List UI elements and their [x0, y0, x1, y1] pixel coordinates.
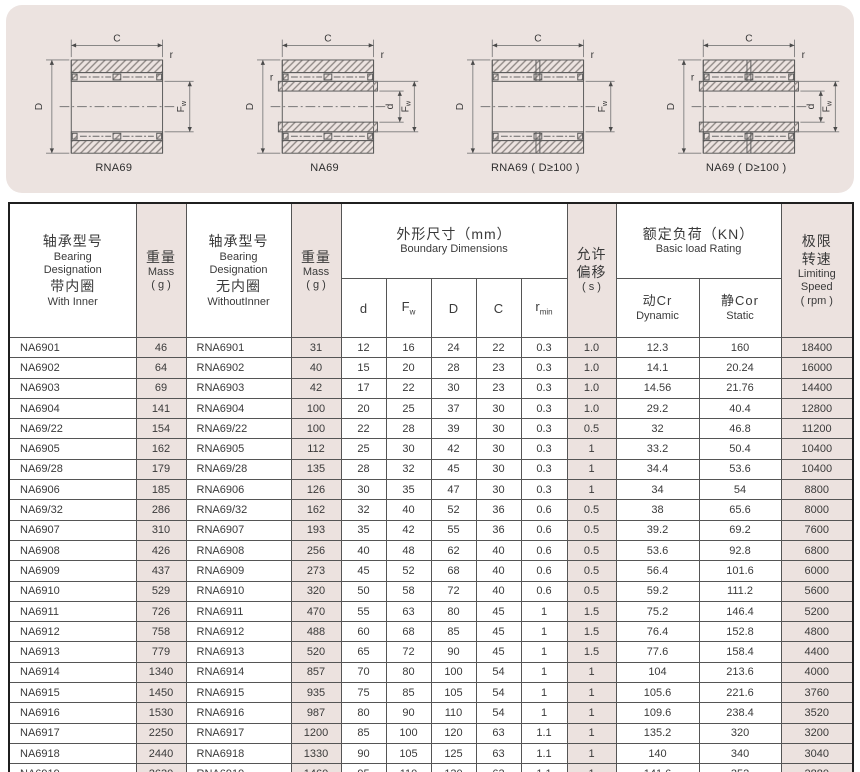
dim-d-cell: 32 — [341, 500, 386, 520]
mass-without-inner-cell: 42 — [291, 378, 341, 398]
dim-label-D: D — [666, 102, 677, 109]
designation-with-inner-cell: NA6912 — [9, 622, 136, 642]
offset-s-cell: 1 — [567, 439, 616, 459]
dim-fw-cell: 32 — [386, 459, 431, 479]
dim-fw-cell: 72 — [386, 642, 431, 662]
offset-s-cell: 0.5 — [567, 500, 616, 520]
offset-s-cell: 0.5 — [567, 581, 616, 601]
table-row: NA69151450RNA691593575851055411105.6221.… — [9, 683, 853, 703]
load-static-cor-cell: 238.4 — [699, 703, 781, 723]
dim-D-cell: 68 — [431, 561, 476, 581]
dim-d-cell: 20 — [341, 398, 386, 418]
dim-d-cell: 85 — [341, 723, 386, 743]
dim-fw-cell: 100 — [386, 723, 431, 743]
limiting-speed-cell: 11200 — [781, 419, 853, 439]
dim-D-cell: 110 — [431, 703, 476, 723]
table-row: NA6905162RNA6905112253042300.3133.250.41… — [9, 439, 853, 459]
dim-d-cell: 75 — [341, 683, 386, 703]
header-permissible-offset: 允许 偏移 ( s ) — [567, 203, 616, 338]
dim-C-cell: 22 — [476, 338, 521, 358]
load-dynamic-cr-cell: 14.1 — [616, 358, 699, 378]
mass-with-inner-cell: 2440 — [136, 743, 186, 763]
header-text: 静Cor — [700, 293, 781, 309]
load-static-cor-cell: 213.6 — [699, 662, 781, 682]
limiting-speed-cell: 3520 — [781, 703, 853, 723]
offset-s-cell: 1 — [567, 662, 616, 682]
header-text: min — [540, 308, 553, 317]
offset-s-cell: 1.5 — [567, 622, 616, 642]
dim-rmin-cell: 0.6 — [521, 520, 567, 540]
limiting-speed-cell: 5200 — [781, 601, 853, 621]
table-row: NA69/28179RNA69/28135283245300.3134.453.… — [9, 459, 853, 479]
header-dynamic-cr: 动Cr Dynamic — [616, 279, 699, 338]
header-text: d — [360, 301, 367, 316]
dim-label-D: D — [34, 102, 45, 109]
dim-fw-cell: 80 — [386, 662, 431, 682]
dim-d-cell: 25 — [341, 439, 386, 459]
designation-with-inner-cell: NA6903 — [9, 378, 136, 398]
dim-D-cell: 37 — [431, 398, 476, 418]
offset-s-cell: 0.5 — [567, 419, 616, 439]
limiting-speed-cell: 4400 — [781, 642, 853, 662]
load-dynamic-cr-cell: 12.3 — [616, 338, 699, 358]
mass-with-inner-cell: 141 — [136, 398, 186, 418]
designation-with-inner-cell: NA69/28 — [9, 459, 136, 479]
designation-without-inner-cell: RNA6906 — [186, 480, 291, 500]
dim-D-cell: 130 — [431, 764, 476, 772]
dim-C-cell: 45 — [476, 601, 521, 621]
table-row: NA69/32286RNA69/32162324052360.60.53865.… — [9, 500, 853, 520]
designation-without-inner-cell: RNA6908 — [186, 540, 291, 560]
dim-D-cell: 62 — [431, 540, 476, 560]
dim-fw-cell: 40 — [386, 500, 431, 520]
limiting-speed-cell: 2880 — [781, 764, 853, 772]
limiting-speed-cell: 3040 — [781, 743, 853, 763]
dim-D-cell: 125 — [431, 743, 476, 763]
mass-with-inner-cell: 2630 — [136, 764, 186, 772]
load-static-cor-cell: 40.4 — [699, 398, 781, 418]
dim-d-cell: 12 — [341, 338, 386, 358]
dim-rmin-cell: 1 — [521, 622, 567, 642]
bearing-cross-section-na69-d100: CrDFwdr — [645, 25, 847, 161]
dim-d-cell: 45 — [341, 561, 386, 581]
dim-fw-cell: 30 — [386, 439, 431, 459]
designation-without-inner-cell: RNA6902 — [186, 358, 291, 378]
mass-with-inner-cell: 1530 — [136, 703, 186, 723]
table-row: NA6913779RNA69135206572904511.577.6158.4… — [9, 642, 853, 662]
header-text: 带内圈 — [10, 277, 136, 296]
table-row: NA69161530RNA691698780901105411109.6238.… — [9, 703, 853, 723]
dim-rmin-cell: 1 — [521, 601, 567, 621]
table-row: NA6906185RNA6906126303547300.3134548800 — [9, 480, 853, 500]
load-static-cor-cell: 54 — [699, 480, 781, 500]
dim-rmin-cell: 0.3 — [521, 398, 567, 418]
mass-without-inner-cell: 162 — [291, 500, 341, 520]
designation-without-inner-cell: RNA69/32 — [186, 500, 291, 520]
dim-rmin-cell: 1.1 — [521, 723, 567, 743]
mass-without-inner-cell: 520 — [291, 642, 341, 662]
header-text: Mass ( g ) — [292, 266, 341, 292]
dim-d-cell: 15 — [341, 358, 386, 378]
load-static-cor-cell: 158.4 — [699, 642, 781, 662]
limiting-speed-cell: 14400 — [781, 378, 853, 398]
header-text: 重量 — [137, 249, 186, 267]
mass-with-inner-cell: 185 — [136, 480, 186, 500]
dim-d-cell: 60 — [341, 622, 386, 642]
dim-d-cell: 80 — [341, 703, 386, 723]
load-dynamic-cr-cell: 56.4 — [616, 561, 699, 581]
load-dynamic-cr-cell: 105.6 — [616, 683, 699, 703]
offset-s-cell: 1.5 — [567, 642, 616, 662]
load-static-cor-cell: 160 — [699, 338, 781, 358]
dim-C-cell: 40 — [476, 561, 521, 581]
load-static-cor-cell: 50.4 — [699, 439, 781, 459]
dim-C-cell: 54 — [476, 683, 521, 703]
dim-label-d: d — [806, 103, 817, 109]
dim-C-cell: 30 — [476, 398, 521, 418]
mass-with-inner-cell: 310 — [136, 520, 186, 540]
limiting-speed-cell: 16000 — [781, 358, 853, 378]
load-dynamic-cr-cell: 34.4 — [616, 459, 699, 479]
header-text: 极限 转速 — [782, 233, 853, 268]
designation-with-inner-cell: NA6907 — [9, 520, 136, 540]
header-dim-C: C — [476, 279, 521, 338]
header-text: D — [449, 301, 458, 316]
offset-s-cell: 1 — [567, 703, 616, 723]
limiting-speed-cell: 7600 — [781, 520, 853, 540]
dim-rmin-cell: 1 — [521, 662, 567, 682]
dim-d-cell: 65 — [341, 642, 386, 662]
mass-without-inner-cell: 31 — [291, 338, 341, 358]
dim-fw-cell: 68 — [386, 622, 431, 642]
mass-with-inner-cell: 1450 — [136, 683, 186, 703]
mass-with-inner-cell: 779 — [136, 642, 186, 662]
dim-d-cell: 70 — [341, 662, 386, 682]
mass-with-inner-cell: 64 — [136, 358, 186, 378]
designation-without-inner-cell: RNA6912 — [186, 622, 291, 642]
designation-without-inner-cell: RNA6919 — [186, 764, 291, 772]
dim-D-cell: 80 — [431, 601, 476, 621]
table-row: NA69172250RNA6917120085100120631.11135.2… — [9, 723, 853, 743]
dim-fw-cell: 42 — [386, 520, 431, 540]
dim-rmin-cell: 0.3 — [521, 378, 567, 398]
load-dynamic-cr-cell: 53.6 — [616, 540, 699, 560]
dim-fw-cell: 20 — [386, 358, 431, 378]
load-static-cor-cell: 111.2 — [699, 581, 781, 601]
catalog-page: CrDFw RNA69 CrDFwdr NA69 CrDFw RNA69 ( D… — [0, 0, 860, 772]
dim-label-D: D — [456, 102, 467, 109]
dim-D-cell: 120 — [431, 723, 476, 743]
mass-without-inner-cell: 488 — [291, 622, 341, 642]
header-text: 轴承型号 — [187, 232, 291, 251]
dim-d-cell: 50 — [341, 581, 386, 601]
header-mass-without-inner: 重量 Mass ( g ) — [291, 203, 341, 338]
dim-fw-cell: 105 — [386, 743, 431, 763]
offset-s-cell: 1.5 — [567, 601, 616, 621]
mass-with-inner-cell: 179 — [136, 459, 186, 479]
header-dim-d: d — [341, 279, 386, 338]
table-row: NA6904141RNA6904100202537300.31.029.240.… — [9, 398, 853, 418]
dim-fw-cell: 85 — [386, 683, 431, 703]
header-dim-fw: Fw — [386, 279, 431, 338]
table-row: NA69/22154RNA69/22100222839300.30.53246.… — [9, 419, 853, 439]
dim-C-cell: 23 — [476, 358, 521, 378]
limiting-speed-cell: 10400 — [781, 439, 853, 459]
mass-without-inner-cell: 470 — [291, 601, 341, 621]
offset-s-cell: 1.0 — [567, 358, 616, 378]
dim-C-cell: 63 — [476, 743, 521, 763]
load-dynamic-cr-cell: 34 — [616, 480, 699, 500]
offset-s-cell: 1 — [567, 743, 616, 763]
load-static-cor-cell: 69.2 — [699, 520, 781, 540]
dim-d-cell: 28 — [341, 459, 386, 479]
dim-rmin-cell: 0.3 — [521, 439, 567, 459]
mass-with-inner-cell: 726 — [136, 601, 186, 621]
header-basic-load-rating: 额定负荷（KN） Basic load Rating — [616, 203, 781, 279]
dim-label-r-inner: r — [691, 72, 695, 83]
table-row: NA6907310RNA6907193354255360.60.539.269.… — [9, 520, 853, 540]
load-dynamic-cr-cell: 109.6 — [616, 703, 699, 723]
table-row: NA690264RNA690240152028230.31.014.120.24… — [9, 358, 853, 378]
mass-with-inner-cell: 286 — [136, 500, 186, 520]
dim-C-cell: 63 — [476, 723, 521, 743]
designation-with-inner-cell: NA6914 — [9, 662, 136, 682]
dim-d-cell: 35 — [341, 520, 386, 540]
dim-C-cell: 36 — [476, 500, 521, 520]
load-static-cor-cell: 221.6 — [699, 683, 781, 703]
mass-without-inner-cell: 193 — [291, 520, 341, 540]
dim-D-cell: 42 — [431, 439, 476, 459]
dim-rmin-cell: 0.3 — [521, 338, 567, 358]
table-row: NA690146RNA690131121624220.31.012.316018… — [9, 338, 853, 358]
mass-with-inner-cell: 529 — [136, 581, 186, 601]
dim-C-cell: 45 — [476, 642, 521, 662]
dim-D-cell: 24 — [431, 338, 476, 358]
header-text: C — [494, 301, 503, 316]
dim-rmin-cell: 1 — [521, 683, 567, 703]
designation-with-inner-cell: NA6908 — [9, 540, 136, 560]
load-dynamic-cr-cell: 141.6 — [616, 764, 699, 772]
mass-without-inner-cell: 935 — [291, 683, 341, 703]
designation-with-inner-cell: NA6913 — [9, 642, 136, 662]
mass-with-inner-cell: 758 — [136, 622, 186, 642]
dim-fw-cell: 48 — [386, 540, 431, 560]
dim-fw-cell: 35 — [386, 480, 431, 500]
mass-without-inner-cell: 256 — [291, 540, 341, 560]
load-static-cor-cell: 352 — [699, 764, 781, 772]
dim-fw-cell: 63 — [386, 601, 431, 621]
header-text: Dynamic — [617, 310, 699, 323]
header-text: 动Cr — [617, 293, 699, 309]
designation-with-inner-cell: NA6911 — [9, 601, 136, 621]
designation-with-inner-cell: NA6906 — [9, 480, 136, 500]
dim-rmin-cell: 0.3 — [521, 480, 567, 500]
dim-rmin-cell: 0.6 — [521, 581, 567, 601]
load-dynamic-cr-cell: 104 — [616, 662, 699, 682]
mass-without-inner-cell: 1330 — [291, 743, 341, 763]
dim-fw-cell: 110 — [386, 764, 431, 772]
dim-C-cell: 36 — [476, 520, 521, 540]
dim-label-r: r — [802, 50, 806, 61]
dim-C-cell: 40 — [476, 540, 521, 560]
offset-s-cell: 1.0 — [567, 378, 616, 398]
header-text: Static — [700, 310, 781, 323]
dim-fw-cell: 58 — [386, 581, 431, 601]
mass-without-inner-cell: 1200 — [291, 723, 341, 743]
header-text: Boundary Dimensions — [342, 243, 567, 256]
table-body: NA690146RNA690131121624220.31.012.316018… — [9, 338, 853, 772]
designation-without-inner-cell: RNA6916 — [186, 703, 291, 723]
offset-s-cell: 1 — [567, 683, 616, 703]
load-static-cor-cell: 152.8 — [699, 622, 781, 642]
designation-with-inner-cell: NA6917 — [9, 723, 136, 743]
dim-rmin-cell: 0.3 — [521, 459, 567, 479]
header-text: 重量 — [292, 249, 341, 267]
load-static-cor-cell: 92.8 — [699, 540, 781, 560]
dim-D-cell: 47 — [431, 480, 476, 500]
limiting-speed-cell: 18400 — [781, 338, 853, 358]
designation-without-inner-cell: RNA69/22 — [186, 419, 291, 439]
designation-without-inner-cell: RNA6905 — [186, 439, 291, 459]
header-designation-with-inner: 轴承型号 Bearing Designation 带内圈 With Inner — [9, 203, 136, 338]
dim-label-Fw: Fw — [400, 100, 412, 112]
designation-without-inner-cell: RNA6911 — [186, 601, 291, 621]
limiting-speed-cell: 8000 — [781, 500, 853, 520]
offset-s-cell: 1 — [567, 723, 616, 743]
designation-without-inner-cell: RNA6901 — [186, 338, 291, 358]
dim-D-cell: 45 — [431, 459, 476, 479]
dim-rmin-cell: 0.3 — [521, 358, 567, 378]
header-text: 额定负荷（KN） — [617, 226, 781, 244]
dim-label-Fw: Fw — [176, 100, 188, 112]
dim-label-Fw: Fw — [597, 100, 609, 112]
mass-without-inner-cell: 126 — [291, 480, 341, 500]
designation-with-inner-cell: NA6909 — [9, 561, 136, 581]
load-dynamic-cr-cell: 75.2 — [616, 601, 699, 621]
dim-D-cell: 30 — [431, 378, 476, 398]
load-dynamic-cr-cell: 14.56 — [616, 378, 699, 398]
mass-with-inner-cell: 154 — [136, 419, 186, 439]
load-static-cor-cell: 101.6 — [699, 561, 781, 581]
diagram-na69-d100: CrDFwdr NA69 ( D≥100 ) — [643, 25, 849, 174]
dim-rmin-cell: 1.1 — [521, 743, 567, 763]
limiting-speed-cell: 3760 — [781, 683, 853, 703]
mass-with-inner-cell: 437 — [136, 561, 186, 581]
header-text: 外形尺寸（mm） — [342, 226, 567, 244]
designation-without-inner-cell: RNA6913 — [186, 642, 291, 662]
dim-C-cell: 54 — [476, 703, 521, 723]
designation-with-inner-cell: NA6918 — [9, 743, 136, 763]
dim-rmin-cell: 0.6 — [521, 500, 567, 520]
header-mass-with-inner: 重量 Mass ( g ) — [136, 203, 186, 338]
load-static-cor-cell: 46.8 — [699, 419, 781, 439]
dim-rmin-cell: 1 — [521, 642, 567, 662]
designation-without-inner-cell: RNA6909 — [186, 561, 291, 581]
dim-d-cell: 55 — [341, 601, 386, 621]
offset-s-cell: 1 — [567, 480, 616, 500]
header-dim-rmin: rmin — [521, 279, 567, 338]
load-dynamic-cr-cell: 135.2 — [616, 723, 699, 743]
table-row: NA6911726RNA69114705563804511.575.2146.4… — [9, 601, 853, 621]
load-dynamic-cr-cell: 33.2 — [616, 439, 699, 459]
designation-with-inner-cell: NA6916 — [9, 703, 136, 723]
table-row: NA69141340RNA691485770801005411104213.64… — [9, 662, 853, 682]
header-text: Bearing Designation — [187, 251, 291, 277]
table-row: NA6909437RNA6909273455268400.60.556.4101… — [9, 561, 853, 581]
dim-C-cell: 63 — [476, 764, 521, 772]
mass-without-inner-cell: 112 — [291, 439, 341, 459]
table-row: NA690369RNA690342172230230.31.014.5621.7… — [9, 378, 853, 398]
offset-s-cell: 0.5 — [567, 540, 616, 560]
dim-label-C: C — [745, 33, 752, 44]
designation-with-inner-cell: NA6902 — [9, 358, 136, 378]
limiting-speed-cell: 6800 — [781, 540, 853, 560]
dim-D-cell: 85 — [431, 622, 476, 642]
table-row: NA6908426RNA6908256404862400.60.553.692.… — [9, 540, 853, 560]
diagram-caption: NA69 ( D≥100 ) — [643, 162, 849, 174]
designation-without-inner-cell: RNA69/28 — [186, 459, 291, 479]
header-boundary-dimensions: 外形尺寸（mm） Boundary Dimensions — [341, 203, 567, 279]
load-static-cor-cell: 53.6 — [699, 459, 781, 479]
load-dynamic-cr-cell: 39.2 — [616, 520, 699, 540]
limiting-speed-cell: 5600 — [781, 581, 853, 601]
designation-without-inner-cell: RNA6904 — [186, 398, 291, 418]
designation-with-inner-cell: NA6905 — [9, 439, 136, 459]
load-dynamic-cr-cell: 29.2 — [616, 398, 699, 418]
offset-s-cell: 1.0 — [567, 338, 616, 358]
dim-label-r-inner: r — [269, 72, 273, 83]
dim-fw-cell: 52 — [386, 561, 431, 581]
dim-D-cell: 90 — [431, 642, 476, 662]
dim-D-cell: 39 — [431, 419, 476, 439]
dim-D-cell: 72 — [431, 581, 476, 601]
table-row: NA69192630RNA6919146095110130631.11141.6… — [9, 764, 853, 772]
designation-with-inner-cell: NA6919 — [9, 764, 136, 772]
header-text: F — [402, 299, 410, 314]
header-text: Basic load Rating — [617, 243, 781, 256]
designation-without-inner-cell: RNA6910 — [186, 581, 291, 601]
designation-without-inner-cell: RNA6903 — [186, 378, 291, 398]
table-row: NA6910529RNA6910320505872400.60.559.2111… — [9, 581, 853, 601]
header-text: With Inner — [10, 296, 136, 309]
load-static-cor-cell: 320 — [699, 723, 781, 743]
designation-without-inner-cell: RNA6914 — [186, 662, 291, 682]
dim-C-cell: 54 — [476, 662, 521, 682]
mass-with-inner-cell: 2250 — [136, 723, 186, 743]
header-static-cor: 静Cor Static — [699, 279, 781, 338]
mass-without-inner-cell: 857 — [291, 662, 341, 682]
header-limiting-speed: 极限 转速 Limiting Speed ( rpm ) — [781, 203, 853, 338]
mass-without-inner-cell: 100 — [291, 398, 341, 418]
dim-fw-cell: 28 — [386, 419, 431, 439]
designation-with-inner-cell: NA69/22 — [9, 419, 136, 439]
mass-without-inner-cell: 320 — [291, 581, 341, 601]
bearing-cross-section-na69: CrDFwdr — [224, 25, 426, 161]
diagram-na69: CrDFwdr NA69 — [222, 25, 428, 174]
dim-fw-cell: 90 — [386, 703, 431, 723]
limiting-speed-cell: 6000 — [781, 561, 853, 581]
header-text: ( s ) — [568, 281, 616, 294]
load-static-cor-cell: 146.4 — [699, 601, 781, 621]
mass-without-inner-cell: 273 — [291, 561, 341, 581]
header-text: WithoutInner — [187, 296, 291, 309]
mass-without-inner-cell: 100 — [291, 419, 341, 439]
bearing-spec-table: 轴承型号 Bearing Designation 带内圈 With Inner … — [8, 202, 854, 772]
dim-label-D: D — [245, 102, 256, 109]
offset-s-cell: 1 — [567, 459, 616, 479]
dim-label-C: C — [113, 33, 120, 44]
diagram-rna69-d100: CrDFw RNA69 ( D≥100 ) — [432, 25, 638, 174]
